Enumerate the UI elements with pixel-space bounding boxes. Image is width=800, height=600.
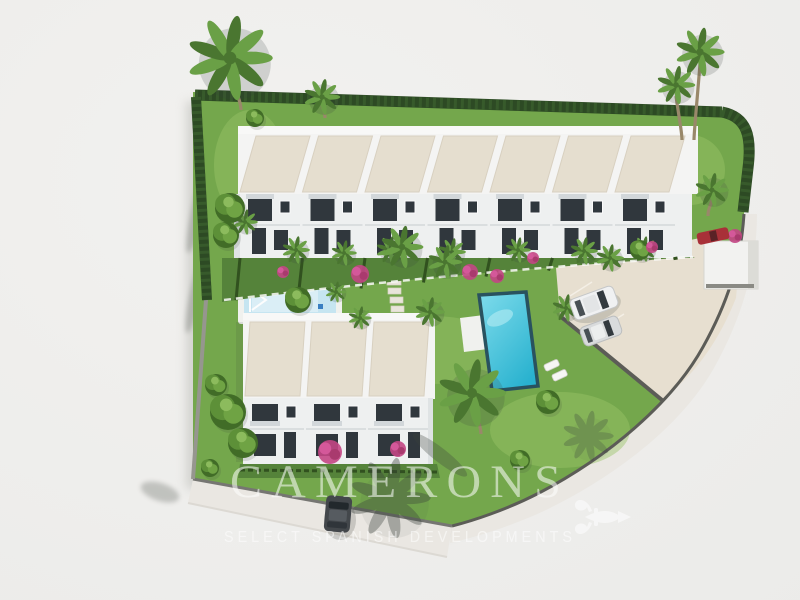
garage-building bbox=[704, 241, 758, 289]
bougainvillea bbox=[646, 241, 658, 253]
watermark-tagline-text: SELECT SPANISH DEVELOPMENTS bbox=[224, 529, 576, 546]
bougainvillea bbox=[527, 252, 539, 264]
roof-panel bbox=[307, 322, 367, 396]
garage-door bbox=[706, 284, 754, 288]
upper-parapet bbox=[238, 126, 698, 134]
bougainvillea bbox=[351, 265, 369, 283]
bougainvillea bbox=[490, 269, 504, 283]
roof-panel bbox=[245, 322, 305, 396]
watermark: CAMERONS SELECT SPANISH DEVELOPMENTS bbox=[224, 456, 631, 546]
watermark-brand-text: CAMERONS bbox=[230, 456, 570, 508]
site-plan-scene: CAMERONS SELECT SPANISH DEVELOPMENTS bbox=[0, 0, 800, 600]
pool-toy bbox=[318, 304, 323, 309]
divider-hedge bbox=[674, 258, 678, 259]
bougainvillea bbox=[277, 266, 289, 278]
roof-panel bbox=[369, 322, 429, 396]
bougainvillea bbox=[728, 229, 742, 243]
lower-parapet bbox=[243, 313, 435, 320]
bougainvillea bbox=[390, 441, 406, 457]
lower-roof-panels bbox=[245, 322, 429, 396]
architectural-render: CAMERONS SELECT SPANISH DEVELOPMENTS bbox=[0, 0, 800, 600]
bougainvillea bbox=[462, 264, 478, 280]
garage-side bbox=[748, 241, 758, 289]
